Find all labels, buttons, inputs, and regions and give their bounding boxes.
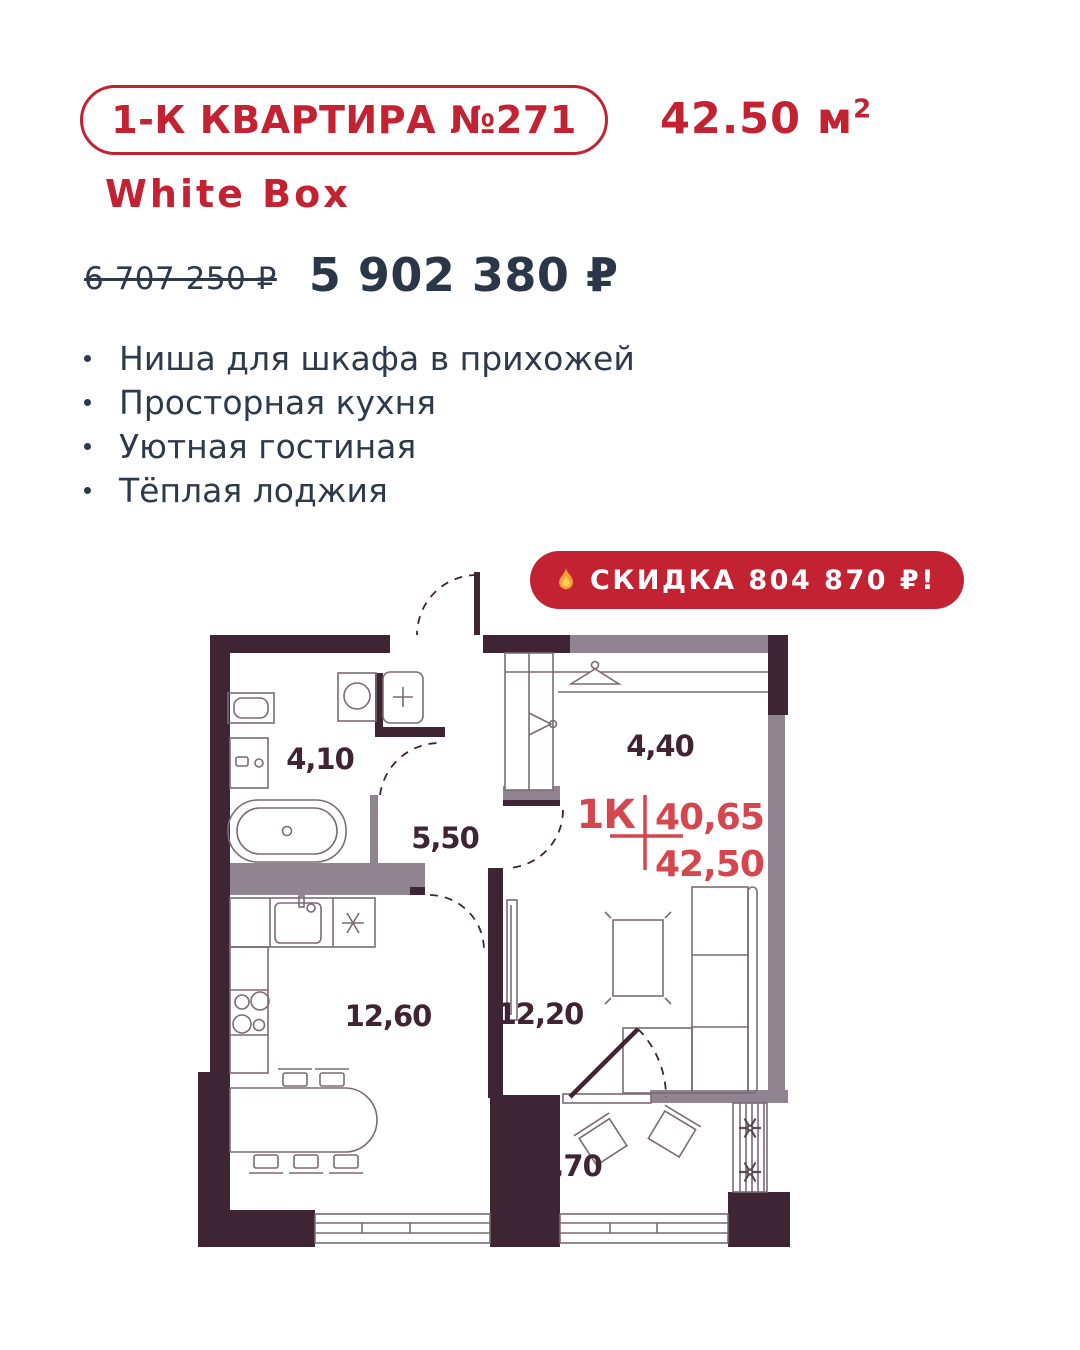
room-area-living: 12,20	[497, 997, 584, 1031]
bullet-dot	[84, 487, 91, 494]
loggia-chair	[646, 1105, 701, 1158]
bullet-dot	[84, 355, 91, 362]
list-item: Просторная кухня	[84, 380, 635, 424]
kitchen-chairs	[249, 1069, 363, 1173]
kitchen-table	[230, 1088, 377, 1152]
living-area-value: 40,65	[655, 797, 764, 838]
new-price: 5 902 380 ₽	[309, 248, 619, 302]
living-room-furniture	[507, 887, 757, 1103]
feature-text: Тёплая лоджия	[119, 471, 388, 510]
loggia-furniture	[574, 1103, 767, 1192]
area-superscript: 2	[853, 95, 872, 125]
loggia-threshold	[563, 1094, 651, 1103]
finish-label: White Box	[105, 172, 351, 216]
plant-shelf	[733, 1103, 767, 1192]
area-label: 42.50 м2	[660, 94, 872, 144]
room-area-wardrobe: 4,40	[626, 729, 694, 763]
stove-burners	[233, 992, 269, 1033]
feature-list: Ниша для шкафа в прихожей Просторная кух…	[84, 336, 635, 512]
feature-text: Уютная гостиная	[119, 427, 416, 466]
room-area-loggia: 3,70	[534, 1149, 602, 1183]
old-price: 6 707 250 ₽	[84, 261, 277, 297]
total-area-value: 42,50	[655, 844, 764, 885]
room-area-bathroom: 4,10	[286, 742, 354, 776]
list-item: Тёплая лоджия	[84, 468, 635, 512]
bullet-dot	[84, 443, 91, 450]
coffee-table	[613, 920, 663, 996]
sofa	[623, 887, 757, 1093]
type-label: 1К	[576, 792, 636, 838]
room-area-kitchen: 12,60	[345, 999, 432, 1033]
feature-text: Ниша для шкафа в прихожей	[119, 339, 635, 378]
entrance-door-arc	[417, 575, 477, 635]
apartment-type-label: 1К 40,65 42,50	[576, 792, 763, 885]
list-item: Ниша для шкафа в прихожей	[84, 336, 635, 380]
bathtub	[228, 800, 346, 862]
wardrobe-niche	[505, 653, 768, 790]
hall-living-door-arc	[508, 810, 563, 868]
kitchen-furniture	[230, 896, 377, 1173]
kitchen-door-arc	[430, 895, 484, 950]
unit-number-label: 1-К КВАРТИРА №271	[111, 98, 577, 142]
bearing-walls	[198, 572, 790, 1247]
hob-symbol	[342, 913, 364, 933]
apartment-card: 1-К КВАРТИРА №271 42.50 м2 White Box 6 7…	[0, 0, 1080, 1350]
loggia-door-leaf	[570, 1029, 638, 1097]
bathroom-door-arc	[380, 743, 440, 795]
bullet-dot	[84, 399, 91, 406]
feature-text: Просторная кухня	[119, 383, 436, 422]
loggia-door-arc	[638, 1029, 666, 1097]
price-row: 6 707 250 ₽ 5 902 380 ₽	[84, 248, 618, 302]
floor-plan: 4,10 5,50 4,40 12,60 12,20 3,70 1К 40,65…	[195, 565, 795, 1255]
unit-number-badge: 1-К КВАРТИРА №271	[80, 85, 608, 155]
room-area-hallway: 5,50	[411, 821, 479, 855]
list-item: Уютная гостиная	[84, 424, 635, 468]
